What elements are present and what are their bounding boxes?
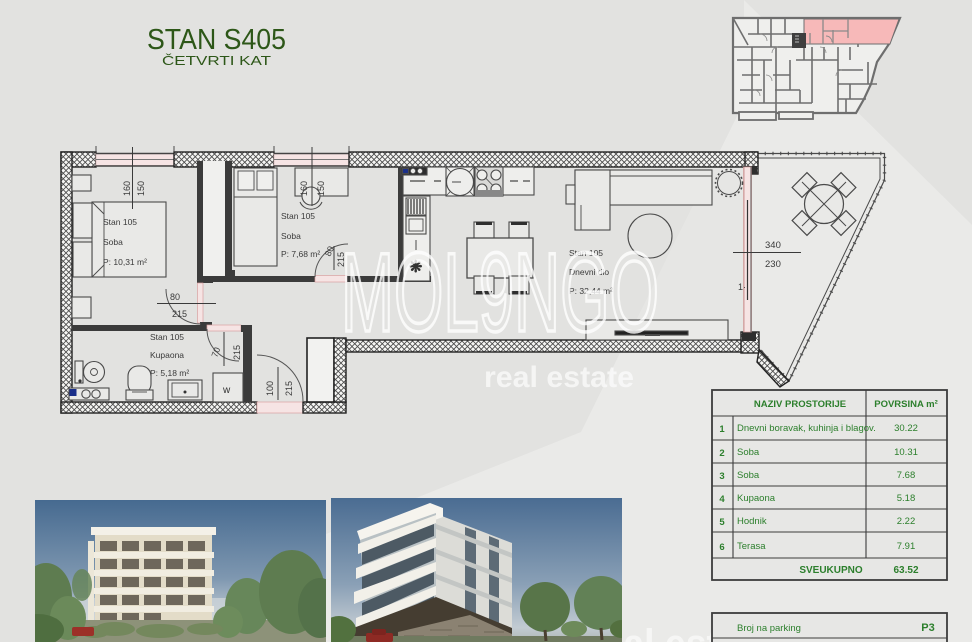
svg-text:Stan 105: Stan 105 bbox=[281, 211, 315, 221]
svg-text:7.68: 7.68 bbox=[897, 470, 916, 481]
svg-text:1·: 1· bbox=[738, 282, 746, 292]
svg-text:SVEUKUPNO: SVEUKUPNO bbox=[799, 565, 863, 576]
svg-text:1: 1 bbox=[719, 424, 725, 435]
svg-text:5: 5 bbox=[719, 517, 725, 528]
svg-text:real estate: real estate bbox=[484, 361, 634, 394]
svg-text:Hodnik: Hodnik bbox=[737, 516, 767, 527]
svg-text:160: 160 bbox=[299, 181, 309, 196]
svg-text:POVRSINA m²: POVRSINA m² bbox=[874, 399, 938, 410]
svg-text:Dnevni boravak, kuhinja i blag: Dnevni boravak, kuhinja i blagov. bbox=[737, 423, 876, 434]
svg-text:Soba: Soba bbox=[281, 231, 301, 241]
svg-text:215: 215 bbox=[232, 345, 242, 360]
svg-text:150: 150 bbox=[316, 181, 326, 196]
svg-text:NAZIV PROSTORIJE: NAZIV PROSTORIJE bbox=[754, 399, 846, 410]
svg-text:2.22: 2.22 bbox=[897, 516, 916, 527]
svg-text:6: 6 bbox=[719, 542, 724, 553]
svg-text:100: 100 bbox=[265, 381, 275, 396]
svg-text:P3: P3 bbox=[921, 622, 934, 634]
svg-text:Broj na parking: Broj na parking bbox=[737, 623, 801, 634]
svg-text:P: 7,68 m²: P: 7,68 m² bbox=[281, 249, 320, 259]
svg-text:ČETVRTI KAT: ČETVRTI KAT bbox=[162, 53, 271, 68]
svg-text:340: 340 bbox=[765, 240, 781, 251]
svg-text:7.91: 7.91 bbox=[897, 541, 916, 552]
svg-text:Soba: Soba bbox=[737, 447, 760, 458]
svg-text:Kupaona: Kupaona bbox=[737, 493, 776, 504]
svg-text:80: 80 bbox=[170, 292, 180, 302]
svg-text:10.31: 10.31 bbox=[894, 447, 918, 458]
svg-text:2: 2 bbox=[719, 448, 724, 459]
svg-text:30.22: 30.22 bbox=[894, 423, 918, 434]
svg-text:Soba: Soba bbox=[103, 237, 123, 247]
svg-text:P: 5,18 m²: P: 5,18 m² bbox=[150, 368, 189, 378]
svg-text:63.52: 63.52 bbox=[893, 565, 918, 576]
svg-text:P: 10,31 m²: P: 10,31 m² bbox=[103, 257, 147, 267]
svg-text:215: 215 bbox=[172, 309, 187, 319]
svg-text:STAN S405: STAN S405 bbox=[147, 24, 286, 56]
svg-text:230: 230 bbox=[765, 259, 781, 270]
svg-text:150: 150 bbox=[136, 181, 146, 196]
svg-text:Terasa: Terasa bbox=[737, 541, 766, 552]
svg-text:4: 4 bbox=[719, 494, 725, 505]
svg-text:Stan 105: Stan 105 bbox=[103, 217, 137, 227]
svg-text:215: 215 bbox=[284, 381, 294, 396]
svg-text:Soba: Soba bbox=[737, 470, 760, 481]
svg-text:160: 160 bbox=[122, 181, 132, 196]
svg-text:3: 3 bbox=[719, 471, 724, 482]
svg-text:w: w bbox=[222, 385, 231, 396]
svg-text:Kupaona: Kupaona bbox=[150, 350, 184, 360]
svg-text:MOL9NGO: MOL9NGO bbox=[341, 230, 659, 355]
svg-text:Stan 105: Stan 105 bbox=[150, 332, 184, 342]
svg-text:5.18: 5.18 bbox=[897, 493, 916, 504]
